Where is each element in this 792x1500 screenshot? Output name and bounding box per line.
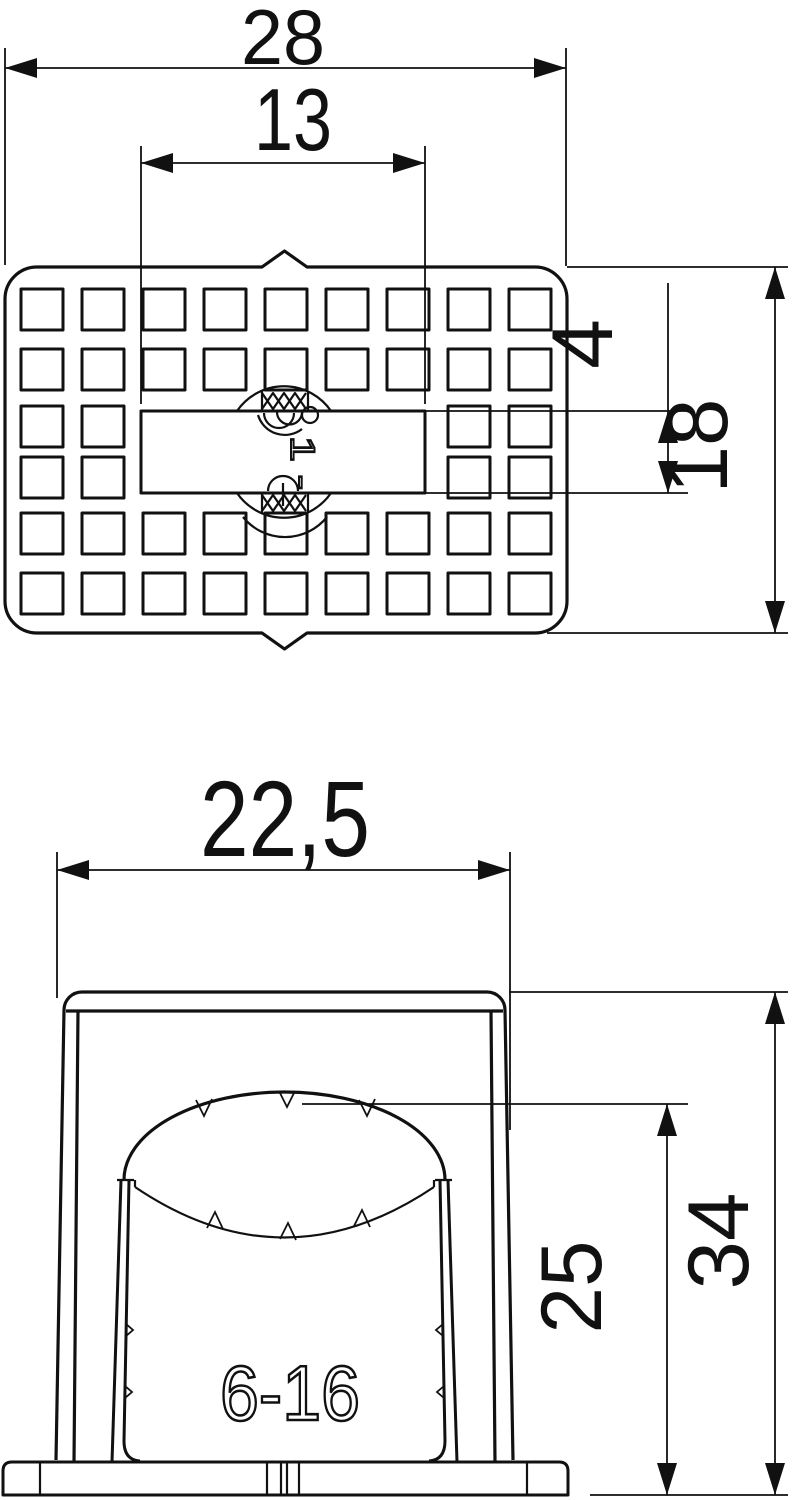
grid-hole <box>21 513 63 554</box>
dim-arrow <box>393 153 425 173</box>
grid-hole <box>509 457 551 498</box>
grid-hole <box>143 513 185 554</box>
base-flange <box>3 1462 568 1495</box>
grid-hole <box>204 513 246 554</box>
front-view: 6-16 22,5 25 34 <box>3 758 788 1495</box>
grid-hole <box>509 406 551 447</box>
technical-drawing-page: 1 - 28 13 4 18 <box>0 0 792 1500</box>
grid-hole <box>143 573 185 614</box>
dim-slot-length-label: 13 <box>254 70 332 169</box>
grid-hole <box>143 289 185 330</box>
grid-hole <box>82 349 124 390</box>
grid-hole <box>82 406 124 447</box>
slot-size-marking: 1 - <box>283 436 321 490</box>
grid-hole <box>509 513 551 554</box>
grid-hole <box>448 457 490 498</box>
grid-hole <box>143 349 185 390</box>
top-view: 1 - 28 13 4 18 <box>5 0 788 649</box>
dim-height-label: 18 <box>650 399 746 494</box>
grid-hole <box>204 349 246 390</box>
grid-hole <box>387 349 429 390</box>
grid-hole <box>82 573 124 614</box>
grid-hole <box>509 573 551 614</box>
dim-arrow <box>478 860 510 880</box>
dim-arrow <box>765 267 785 299</box>
grid-hole <box>204 573 246 614</box>
dim-slot-height-label: 4 <box>535 319 631 369</box>
dim-width-label: 22,5 <box>200 758 370 879</box>
grid-hole <box>326 349 368 390</box>
grid-hole <box>387 573 429 614</box>
grid-hole <box>265 513 307 554</box>
top-view-dimensions <box>5 48 788 633</box>
dim-opening-height-label: 25 <box>524 1241 620 1334</box>
grid-hole <box>21 457 63 498</box>
dim-arrow <box>765 1463 785 1495</box>
grid-hole <box>265 349 307 390</box>
grid-hole <box>326 513 368 554</box>
dim-arrow <box>765 601 785 633</box>
grid-hole <box>448 349 490 390</box>
grid-hole <box>21 349 63 390</box>
grid-hole <box>387 513 429 554</box>
dim-arrow <box>657 1463 677 1495</box>
grid-hole <box>82 513 124 554</box>
dim-arrow <box>5 58 37 78</box>
grid-hole <box>204 289 246 330</box>
size-range-marking: 6-16 <box>220 1349 360 1437</box>
grid-hole <box>448 513 490 554</box>
dim-arrow <box>57 860 89 880</box>
front-view-dimensions <box>57 852 788 1495</box>
grid-hole <box>21 406 63 447</box>
flange-split <box>267 1462 299 1495</box>
dim-height-label: 34 <box>671 1193 767 1290</box>
dim-arrow <box>141 153 173 173</box>
cable-opening <box>124 1091 445 1240</box>
dim-arrow <box>534 58 566 78</box>
dim-arrow <box>765 992 785 1024</box>
grid-hole <box>82 457 124 498</box>
dim-width-label: 28 <box>241 0 325 81</box>
dim-arrow <box>657 1104 677 1136</box>
grid-hole <box>326 573 368 614</box>
grid-hole <box>326 289 368 330</box>
grid-hole <box>387 289 429 330</box>
grid-hole <box>448 573 490 614</box>
grid-hole <box>82 289 124 330</box>
grid-hole <box>265 289 307 330</box>
grid-hole <box>21 289 63 330</box>
grid-hole <box>265 573 307 614</box>
grid-hole <box>21 573 63 614</box>
technical-drawing: 1 - 28 13 4 18 <box>0 0 792 1500</box>
grid-hole <box>448 289 490 330</box>
grid-hole <box>448 406 490 447</box>
